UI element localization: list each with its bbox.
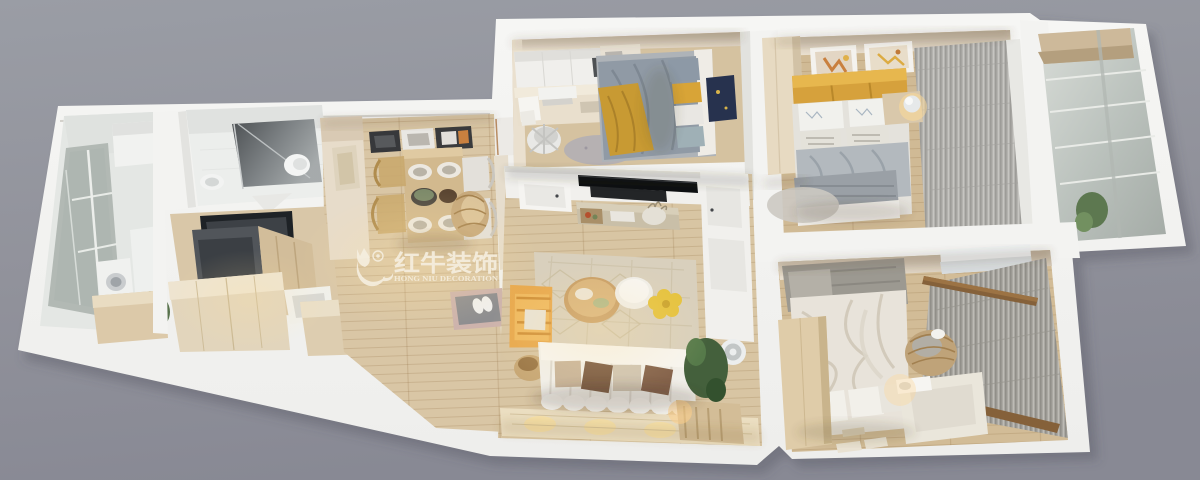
svg-text:HONG NIU DECORATION: HONG NIU DECORATION [394, 274, 499, 283]
svg-text:红牛装饰: 红牛装饰 [394, 250, 498, 276]
